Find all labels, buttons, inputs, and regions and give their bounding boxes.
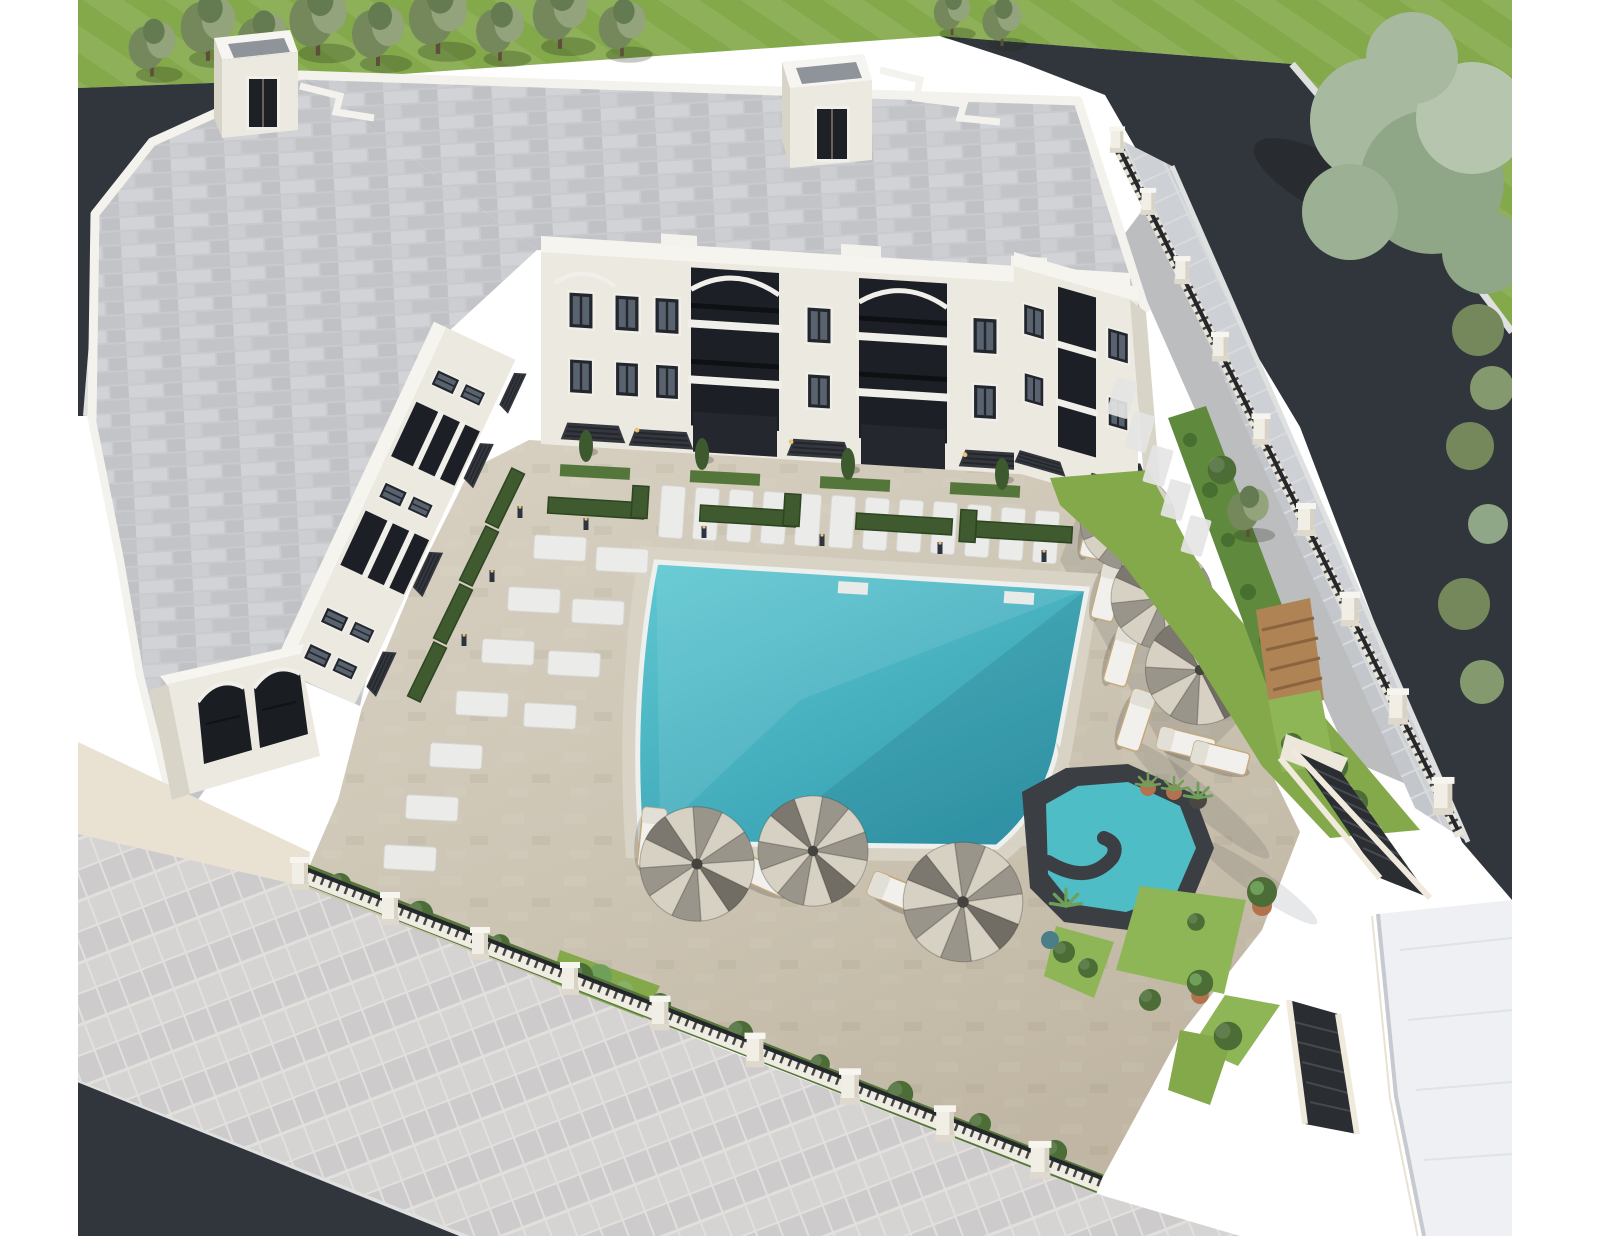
roof-tower-2 <box>782 54 872 168</box>
recessed-balcony-bay <box>859 278 947 444</box>
render-stage <box>0 0 1600 1236</box>
blue-pot <box>1041 931 1059 949</box>
pool-steps <box>838 581 869 595</box>
roof-tower-1 <box>214 30 298 138</box>
pool-steps <box>1004 591 1035 605</box>
scene <box>78 0 1528 1236</box>
aerial-render <box>0 0 1600 1236</box>
recessed-balcony-bay <box>691 267 779 431</box>
